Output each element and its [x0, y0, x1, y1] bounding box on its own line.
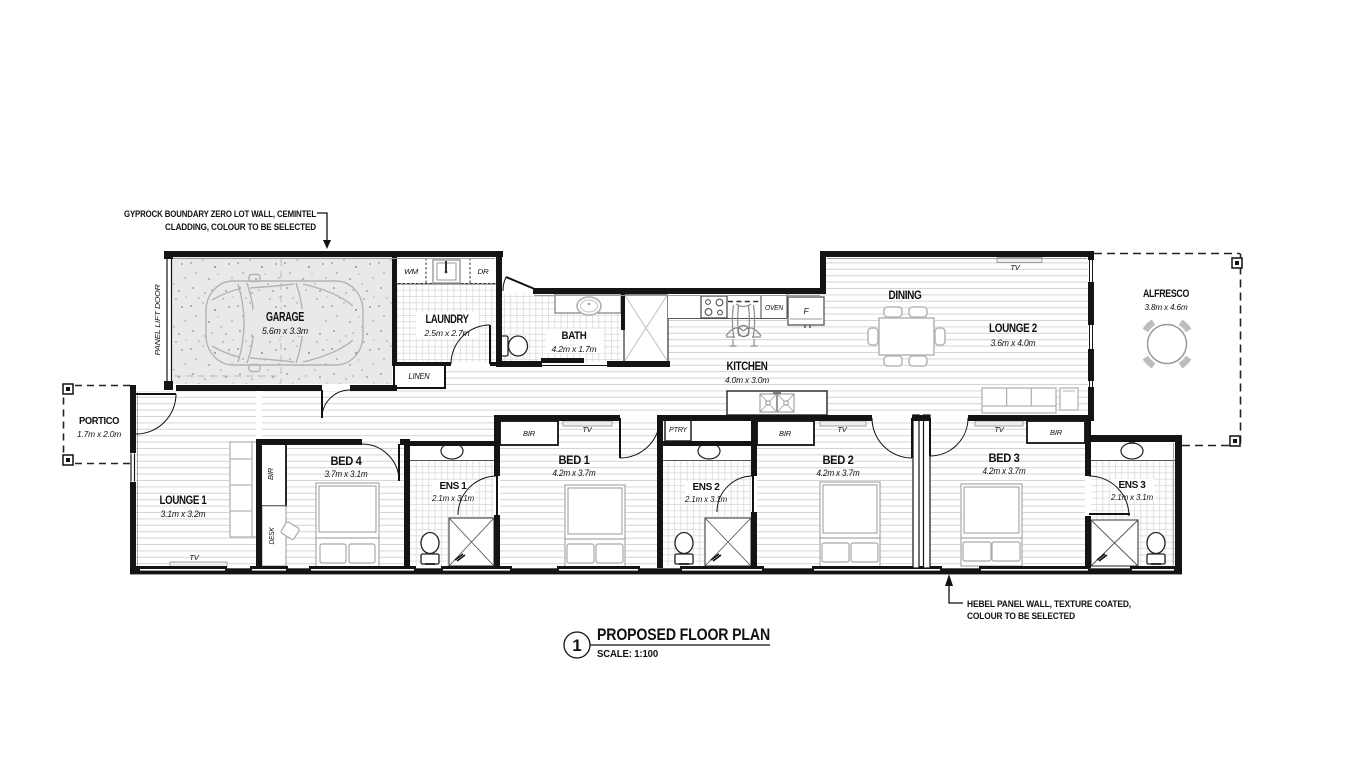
svg-text:BIR: BIR	[1050, 428, 1063, 437]
svg-text:HEBEL PANEL WALL, TEXTURE COAT: HEBEL PANEL WALL, TEXTURE COATED,	[967, 599, 1131, 609]
svg-text:2.1m x 3.1m: 2.1m x 3.1m	[431, 493, 474, 503]
svg-text:ENS 1: ENS 1	[440, 480, 468, 492]
svg-text:2.1m x 3.1m: 2.1m x 3.1m	[1110, 492, 1153, 502]
svg-text:PORTICO: PORTICO	[79, 415, 119, 427]
svg-text:4.2m x 3.7m: 4.2m x 3.7m	[553, 468, 597, 478]
svg-text:PTRY: PTRY	[669, 425, 688, 434]
svg-text:PANEL LIFT DOOR: PANEL LIFT DOOR	[153, 284, 162, 356]
svg-text:BED 1: BED 1	[559, 453, 591, 467]
svg-text:LINEN: LINEN	[409, 371, 431, 381]
svg-text:BED 3: BED 3	[989, 451, 1021, 465]
svg-text:BIR: BIR	[779, 429, 792, 438]
svg-text:BED 4: BED 4	[331, 454, 363, 468]
svg-text:SCALE: 1:100: SCALE: 1:100	[597, 649, 659, 660]
svg-text:5.6m x 3.3m: 5.6m x 3.3m	[262, 326, 309, 336]
svg-text:3.7m x 3.1m: 3.7m x 3.1m	[325, 469, 369, 479]
svg-text:COLOUR TO BE SELECTED: COLOUR TO BE SELECTED	[967, 611, 1075, 621]
svg-text:4.0m x 3.0m: 4.0m x 3.0m	[725, 375, 769, 385]
svg-text:GYPROCK BOUNDARY ZERO LOT WALL: GYPROCK BOUNDARY ZERO LOT WALL, CEMINTEL	[124, 209, 316, 219]
svg-text:4.2m x 3.7m: 4.2m x 3.7m	[817, 468, 861, 478]
svg-text:1.7m x 2.0m: 1.7m x 2.0m	[77, 429, 121, 439]
svg-text:BIR: BIR	[523, 429, 536, 438]
svg-text:4.2m x 3.7m: 4.2m x 3.7m	[983, 466, 1027, 476]
svg-text:4.2m x 1.7m: 4.2m x 1.7m	[552, 344, 597, 354]
svg-text:TV: TV	[994, 425, 1004, 434]
svg-text:3.6m x 4.0m: 3.6m x 4.0m	[991, 338, 1037, 348]
svg-text:3.8m x 4.6m: 3.8m x 4.6m	[1145, 302, 1188, 312]
svg-text:PROPOSED FLOOR PLAN: PROPOSED FLOOR PLAN	[597, 626, 770, 644]
svg-text:BED 2: BED 2	[823, 453, 855, 467]
svg-text:OVEN: OVEN	[765, 303, 784, 312]
svg-text:CLADDING, COLOUR TO BE SELECTE: CLADDING, COLOUR TO BE SELECTED	[165, 222, 316, 232]
svg-text:WM: WM	[404, 267, 419, 276]
svg-text:DR: DR	[478, 267, 490, 276]
svg-text:TV: TV	[189, 553, 199, 562]
svg-text:TV: TV	[1010, 263, 1020, 272]
svg-text:ENS 3: ENS 3	[1119, 479, 1147, 491]
svg-text:TV: TV	[582, 425, 592, 434]
svg-text:KITCHEN: KITCHEN	[727, 361, 768, 373]
svg-text:TV: TV	[837, 425, 847, 434]
svg-text:DINING: DINING	[889, 290, 922, 302]
svg-text:LOUNGE 2: LOUNGE 2	[989, 321, 1038, 335]
svg-text:LOUNGE 1: LOUNGE 1	[160, 493, 208, 507]
svg-text:3.1m x 3.2m: 3.1m x 3.2m	[161, 509, 207, 519]
svg-text:BIR: BIR	[266, 467, 275, 480]
svg-text:BATH: BATH	[562, 330, 587, 342]
svg-text:1: 1	[572, 636, 581, 655]
svg-text:ENS 2: ENS 2	[693, 481, 721, 493]
svg-text:ALFRESCO: ALFRESCO	[1143, 288, 1190, 300]
svg-text:GARAGE: GARAGE	[266, 310, 304, 324]
svg-text:DESK: DESK	[267, 526, 276, 544]
svg-text:LAUNDRY: LAUNDRY	[426, 314, 470, 326]
